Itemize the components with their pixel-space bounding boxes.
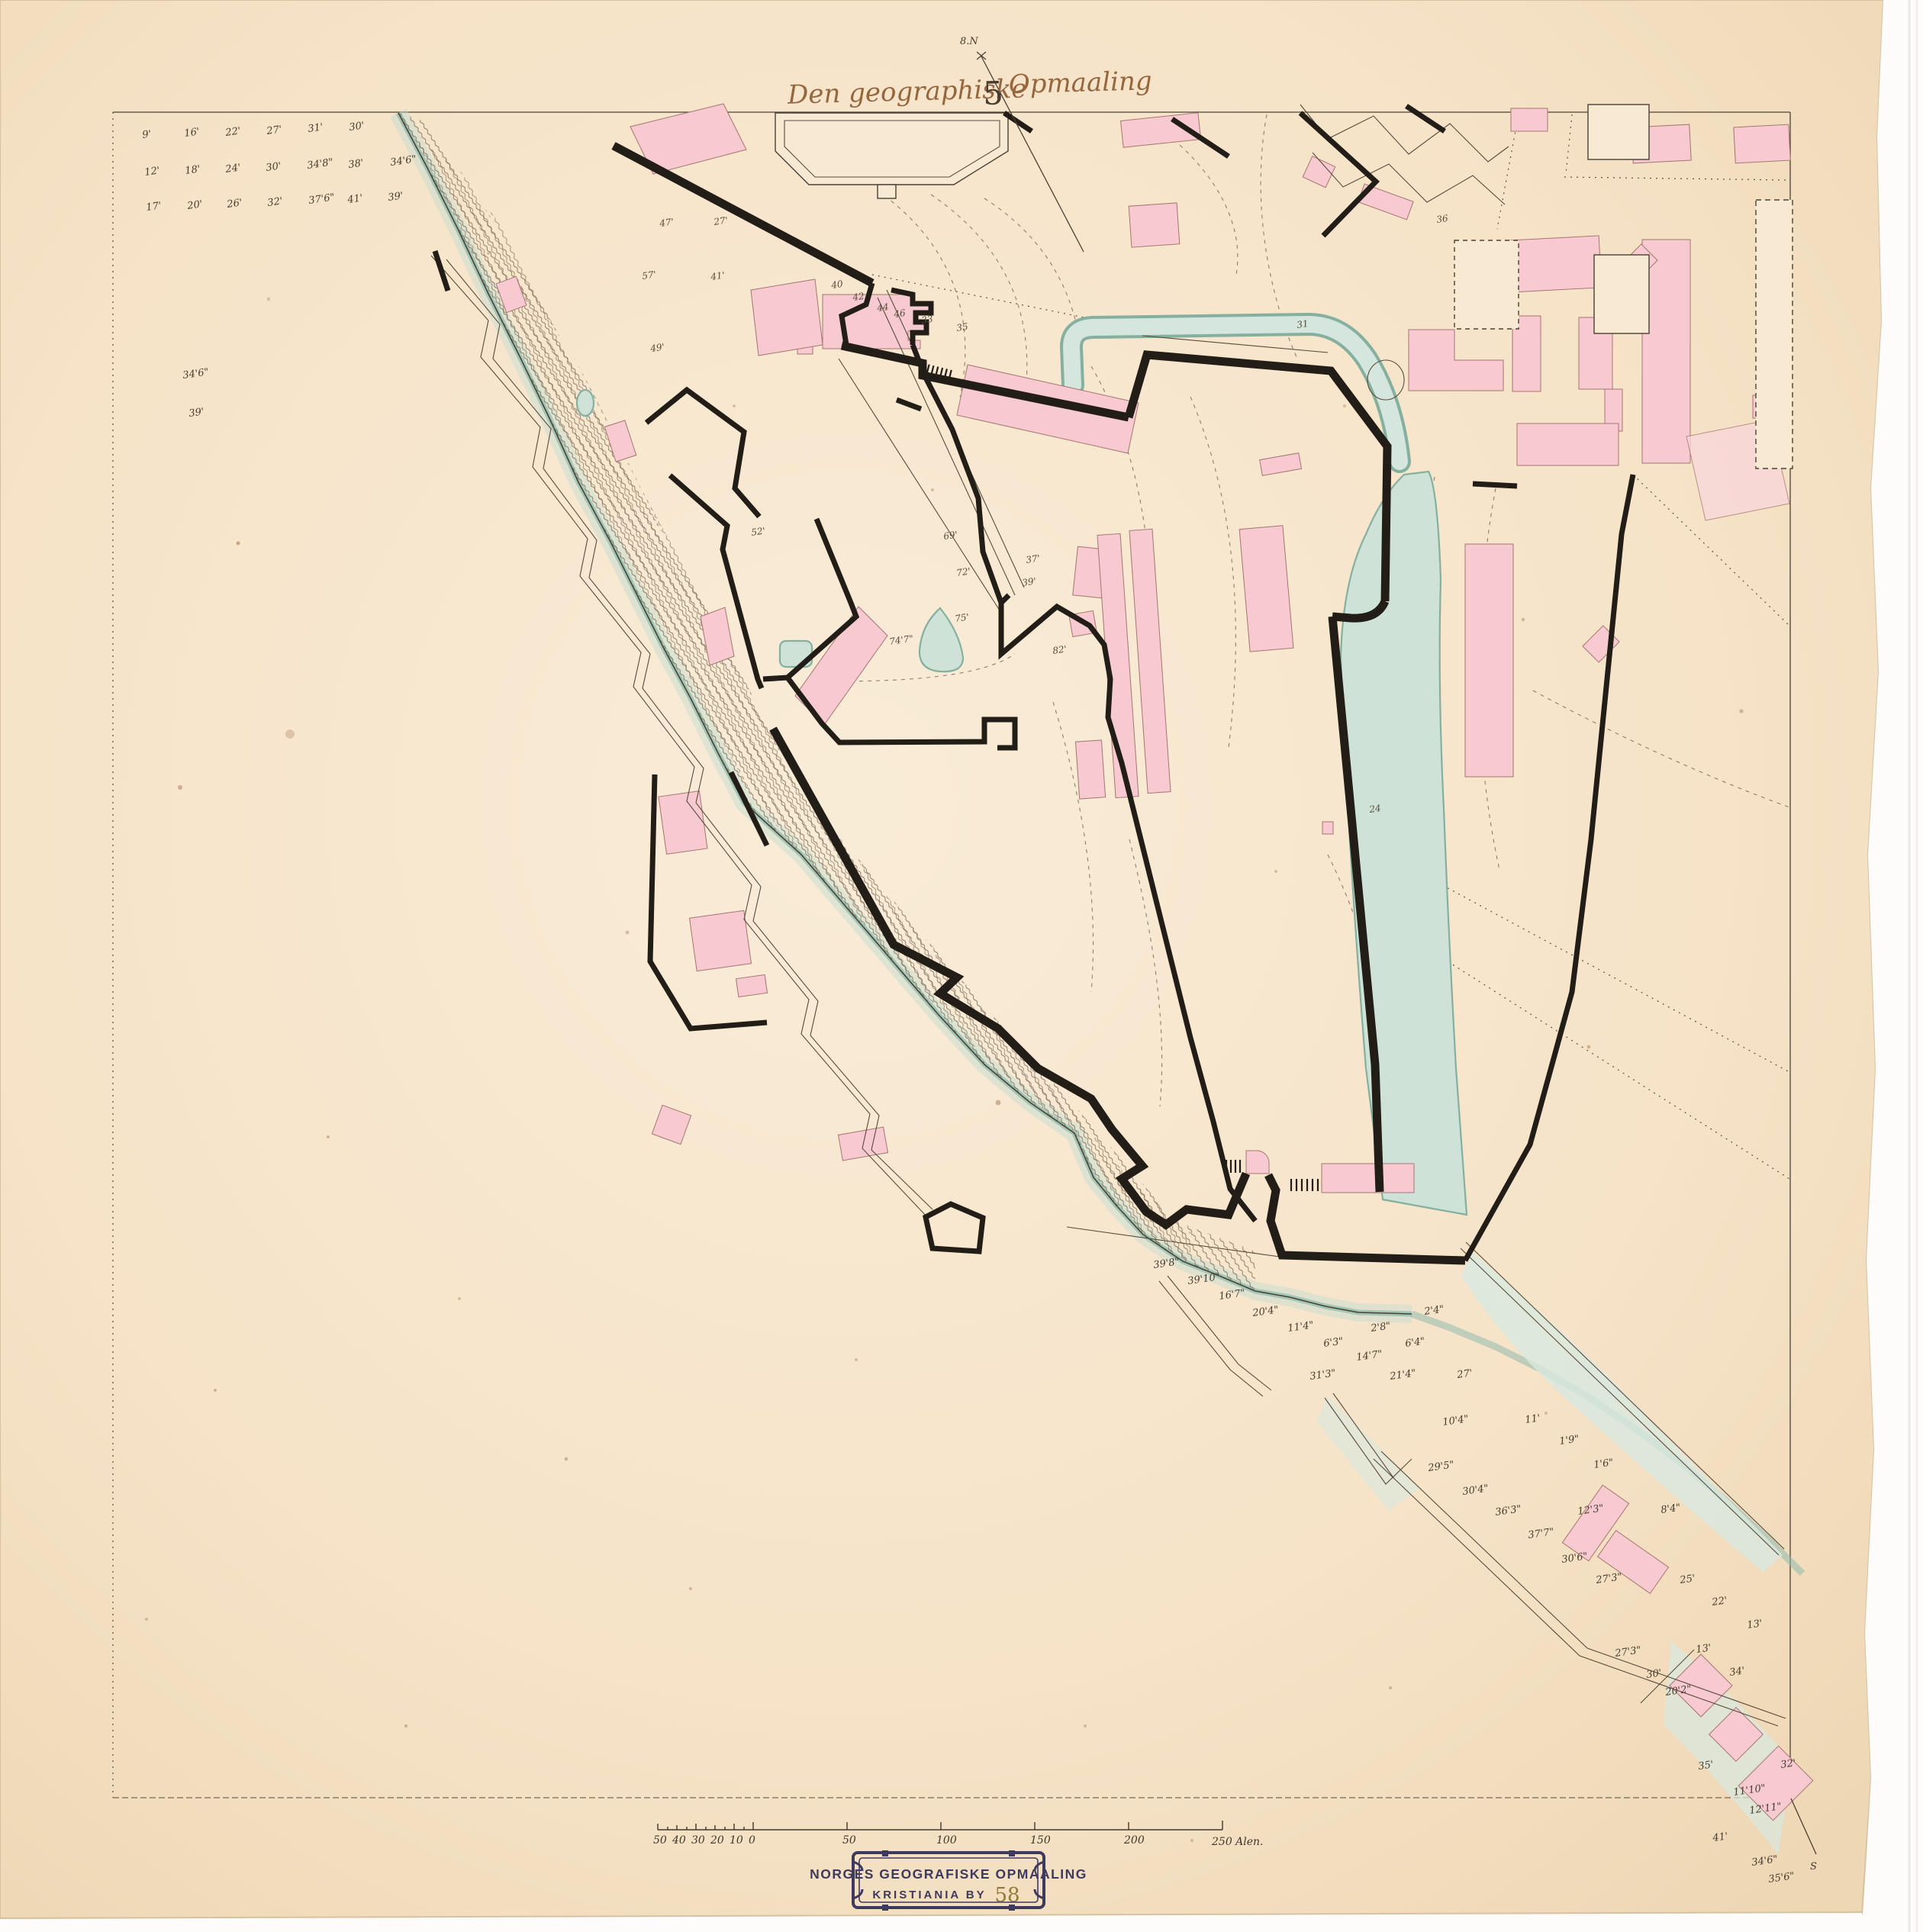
elevation-label: 27' bbox=[712, 215, 728, 228]
depth-sounding: 18' bbox=[184, 163, 201, 177]
depth-sounding: 41' bbox=[346, 192, 363, 206]
elevation-label: 35 bbox=[955, 321, 968, 333]
depth-sounding: 24' bbox=[224, 162, 241, 175]
depth-sounding: 30' bbox=[1645, 1667, 1662, 1681]
elevation-label: 24 bbox=[1367, 803, 1381, 815]
depth-sounding: 17' bbox=[145, 200, 162, 214]
elevation-label: 49' bbox=[649, 342, 665, 355]
elevation-label: 40 bbox=[829, 279, 843, 291]
scale-bar-label: 0 bbox=[749, 1834, 755, 1847]
depth-sounding: 27' bbox=[265, 124, 282, 137]
well-pond bbox=[577, 390, 594, 416]
stamp-city: KRISTIANIA BY bbox=[872, 1889, 986, 1901]
depth-sounding: 22' bbox=[1710, 1595, 1728, 1608]
elevation-label: 75' bbox=[954, 612, 969, 624]
depth-sounding: 25' bbox=[1678, 1573, 1696, 1586]
elevation-label: 39' bbox=[1021, 576, 1036, 588]
depth-sounding: 39' bbox=[188, 406, 205, 420]
depth-sounding: 31' bbox=[307, 121, 324, 135]
depth-sounding: 39' bbox=[387, 190, 404, 204]
scale-bar-label: 50 bbox=[842, 1834, 856, 1847]
title-plate-number: 5 bbox=[982, 74, 1003, 112]
depth-sounding: 27' bbox=[1455, 1367, 1473, 1381]
elevation-label: 41' bbox=[709, 270, 725, 283]
elevation-label: 33 bbox=[920, 314, 933, 326]
map-canvas: 8.N S Den geographiske 5 Opmaaling 50403… bbox=[0, 0, 1923, 1932]
depth-sounding: 35' bbox=[1697, 1759, 1714, 1773]
scanned-map-sheet: 8.N S Den geographiske 5 Opmaaling 50403… bbox=[0, 0, 1923, 1932]
depth-sounding: 32' bbox=[266, 195, 283, 209]
depth-sounding: 22' bbox=[224, 125, 241, 139]
elevation-label: 46 bbox=[892, 308, 906, 320]
scale-unit-label: 250 Alen. bbox=[1211, 1836, 1264, 1848]
elevation-label: 36 bbox=[1435, 213, 1448, 225]
scale-bar-label: 200 bbox=[1123, 1834, 1145, 1847]
depth-sounding: 34' bbox=[1728, 1665, 1745, 1679]
depth-sounding: 9' bbox=[141, 128, 152, 141]
scale-bar-label: 100 bbox=[936, 1834, 957, 1847]
stamp-sheet-number: 58 bbox=[994, 1884, 1019, 1907]
elevation-label: 72' bbox=[955, 566, 971, 578]
scale-bar-label: 30 bbox=[691, 1834, 705, 1847]
title-part2: Opmaaling bbox=[1008, 66, 1152, 100]
depth-sounding: 12' bbox=[143, 165, 160, 179]
scale-bar-label: 10 bbox=[730, 1834, 743, 1847]
elevation-label: 82' bbox=[1052, 644, 1067, 656]
elevation-label: 37' bbox=[1025, 553, 1040, 565]
scale-bar-label: 50 bbox=[653, 1834, 667, 1847]
elevation-label: 57' bbox=[641, 269, 656, 282]
depth-sounding: 16' bbox=[183, 126, 200, 140]
elevation-label: 69' bbox=[942, 530, 958, 542]
scale-bar-label: 40 bbox=[672, 1834, 686, 1847]
elevation-label: 44 bbox=[875, 301, 889, 314]
depth-sounding: 20' bbox=[185, 198, 203, 212]
depth-sounding: 26' bbox=[225, 197, 243, 211]
elevation-label: 52' bbox=[750, 526, 765, 538]
elevation-label: 31 bbox=[1296, 318, 1309, 330]
stamp-agency: NORGES GEOGRAFISKE OPMAALING bbox=[810, 1866, 1087, 1882]
depth-sounding: 13' bbox=[1695, 1642, 1712, 1656]
depth-sounding: 11' bbox=[1524, 1412, 1541, 1426]
depth-sounding: 30' bbox=[265, 160, 282, 174]
depth-sounding: 38' bbox=[347, 157, 364, 171]
depth-sounding: 41' bbox=[1711, 1831, 1728, 1844]
meridian-south-label: S bbox=[1810, 1861, 1817, 1872]
round-tower bbox=[1246, 1151, 1269, 1174]
meridian-north-label: 8.N bbox=[960, 36, 978, 47]
depth-sounding: 13' bbox=[1746, 1618, 1763, 1631]
elevation-label: 47' bbox=[658, 217, 674, 230]
depth-sounding: 30' bbox=[348, 120, 365, 134]
depth-sounding: 32' bbox=[1780, 1757, 1796, 1771]
scale-bar-label: 20 bbox=[710, 1834, 724, 1847]
scale-bar-label: 150 bbox=[1030, 1834, 1051, 1847]
elevation-label: 42 bbox=[851, 291, 865, 303]
